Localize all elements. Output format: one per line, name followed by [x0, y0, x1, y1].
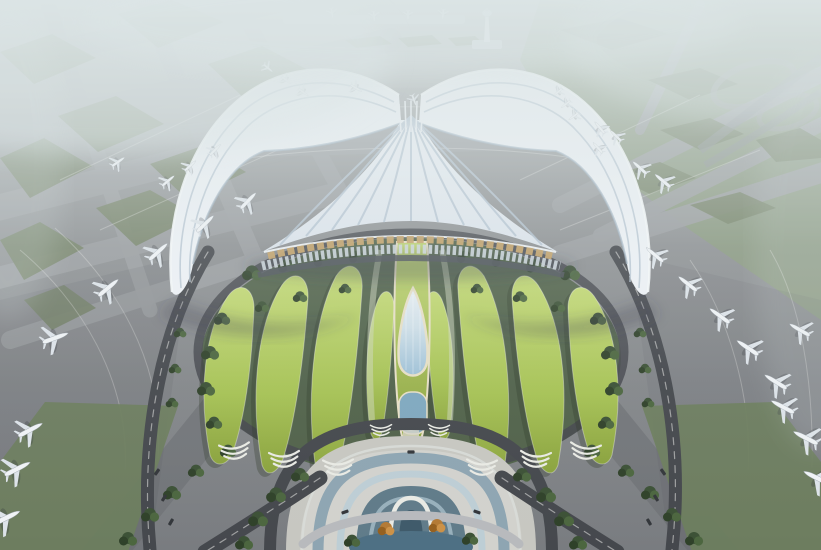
airport-aerial-rendering [0, 0, 821, 550]
haze-overlay [0, 0, 821, 550]
scene-canvas [0, 0, 821, 550]
